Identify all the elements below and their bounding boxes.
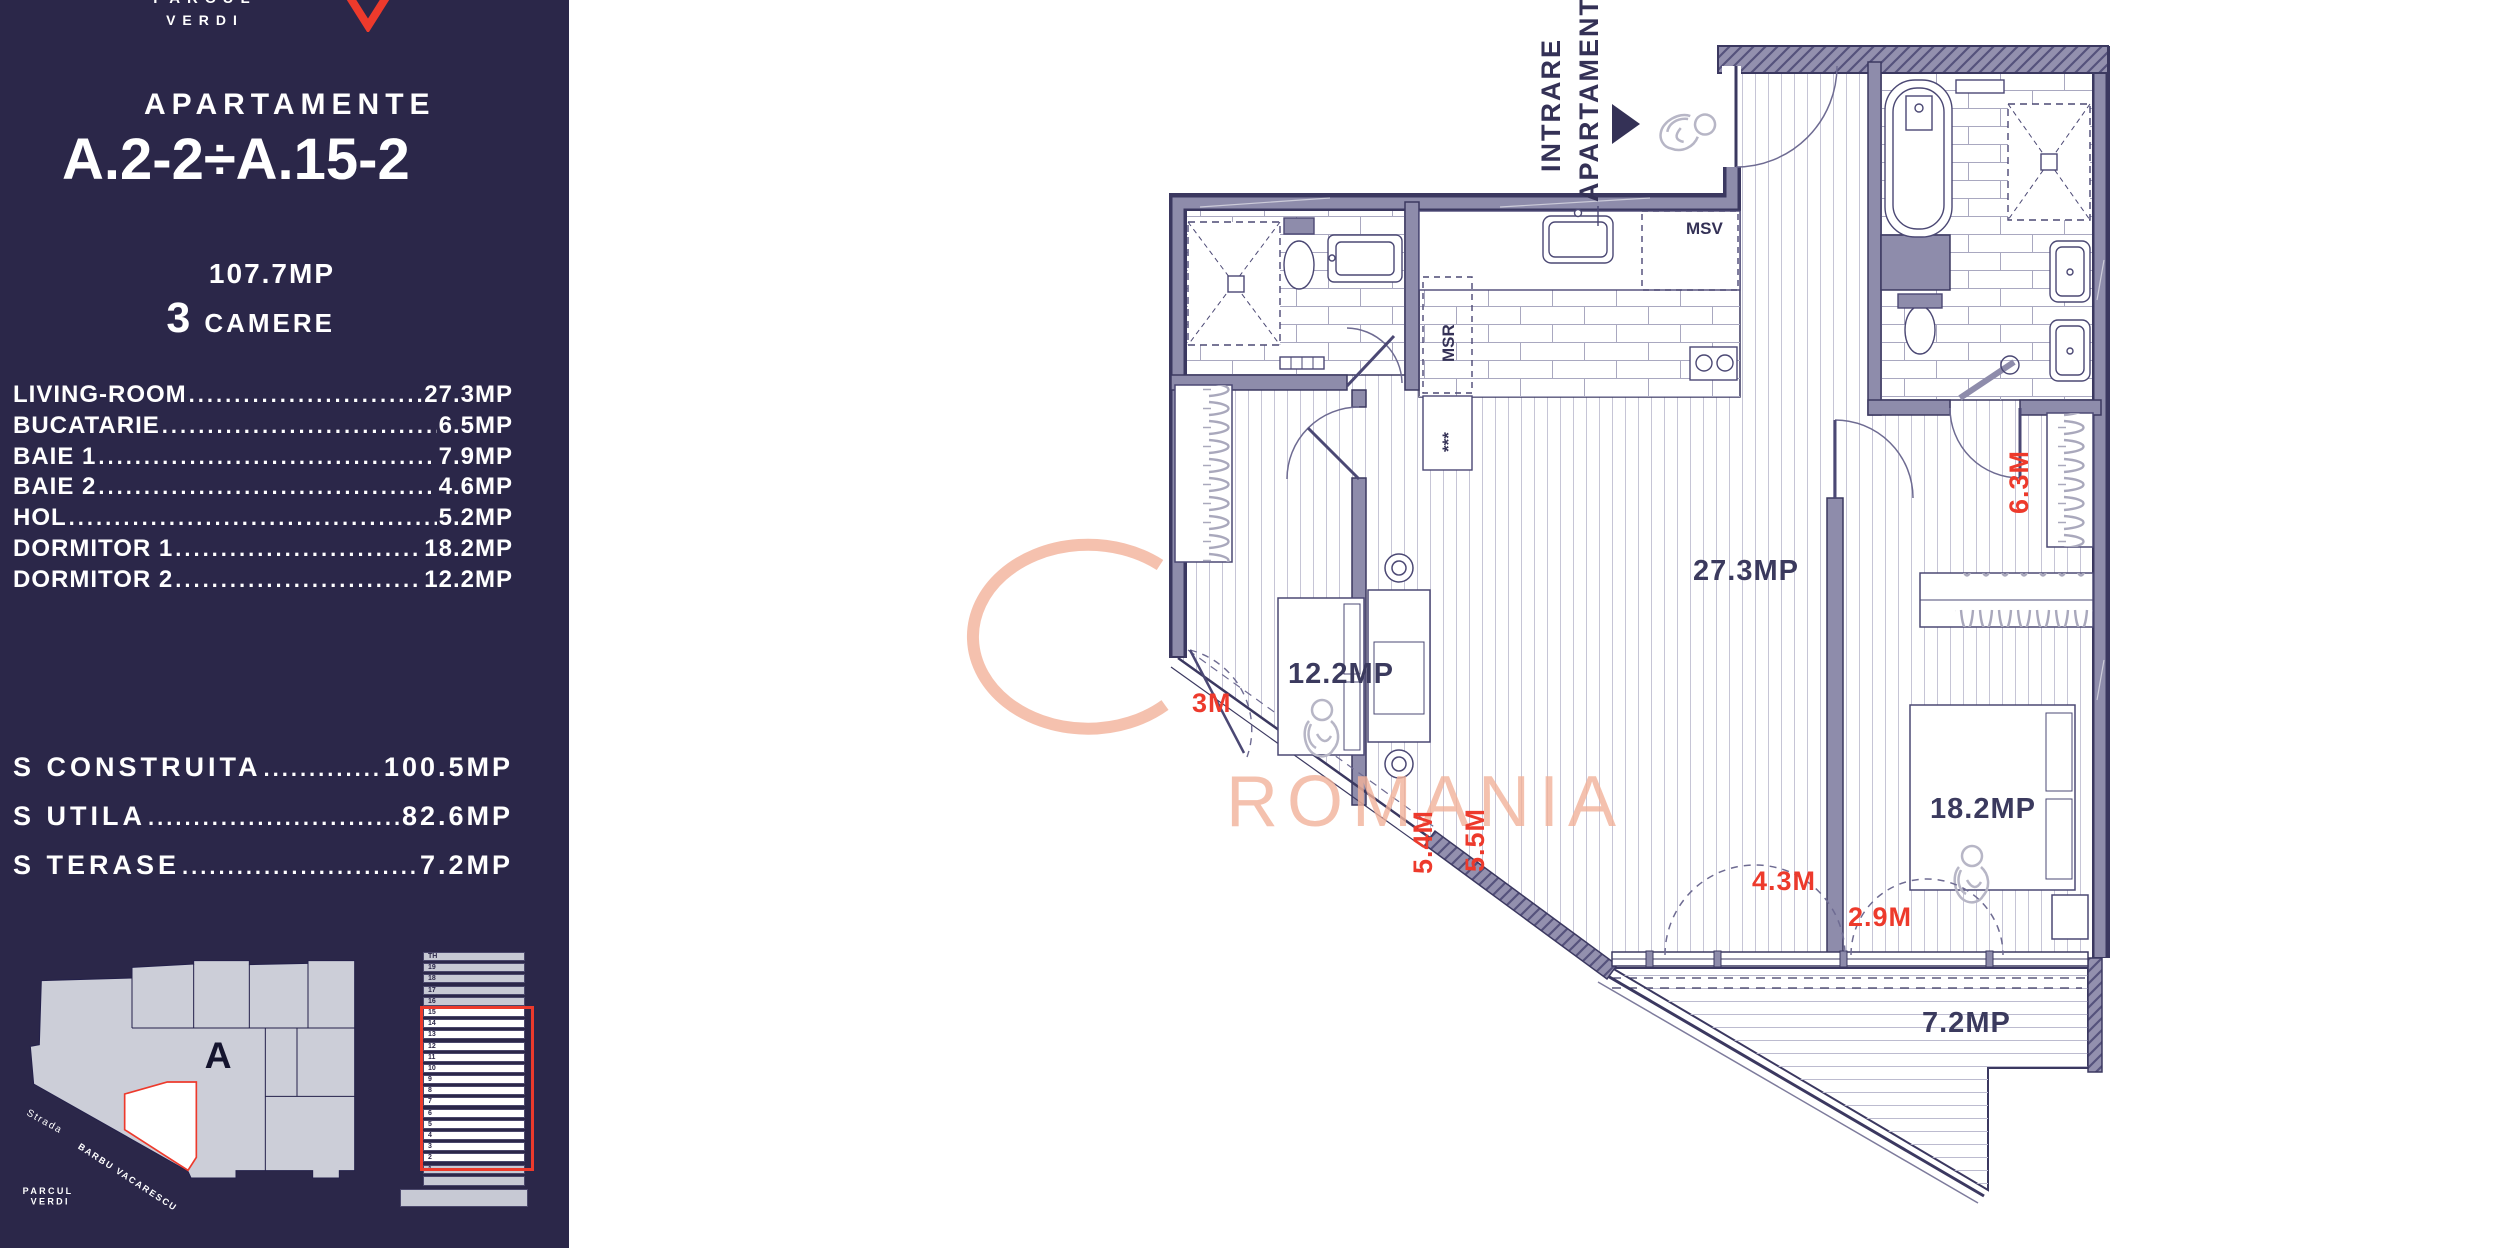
room-list-item-bucatarie: BUCATARIE...............................… [13, 412, 513, 443]
elevation-floor-17: 17 [423, 986, 525, 995]
site-plan: A Strada BARBU VACARESCU PARCUL VERDI [2, 948, 402, 1246]
room-list-item-dormitor1: DORMITOR 1..............................… [13, 535, 513, 566]
apartments-label: APARTAMENTE [144, 88, 436, 122]
toilet-cistern-2 [1284, 218, 1314, 234]
dot-leader: ........................................… [98, 474, 436, 500]
total-name: S CONSTRUITA [13, 752, 262, 783]
room-list: LIVING-ROOM.............................… [13, 381, 513, 597]
ground-floor-bar [423, 1176, 525, 1186]
total-value: 7.2MP [420, 850, 513, 881]
dim-6-3m: 6.3M [2004, 450, 2034, 514]
ground-slab [400, 1189, 528, 1207]
entrance-annotation: INTRARE APARTAMENT [1536, 0, 1640, 202]
room-name: LIVING-ROOM [13, 381, 187, 409]
totals: S CONSTRUITA............................… [13, 752, 513, 899]
room-name: BUCATARIE [13, 412, 160, 440]
room-name: BAIE 1 [13, 443, 96, 471]
dot-leader: ........................................… [189, 382, 423, 408]
terrace-area-label: 7.2MP [1922, 1007, 2011, 1039]
person-figure-entry [1656, 105, 1720, 156]
wall-living-dorm1 [1827, 498, 1843, 960]
toilet-1 [1905, 306, 1935, 354]
dot-leader: ........................................… [175, 567, 422, 593]
shelf [1956, 80, 2004, 93]
page: { "colors": {"navy":"#2b2749","red":"#ed… [0, 0, 2509, 1248]
logo-word-top: PARCUL [130, 0, 280, 9]
stars-label: *** [1439, 432, 1458, 452]
dim-5-5m: 5.5M [1460, 808, 1490, 872]
rooms-count-row: 3CAMERE [0, 294, 335, 343]
room-name: DORMITOR 1 [13, 535, 173, 563]
terrace [1598, 968, 2088, 1203]
terrace-right-parapet [2088, 958, 2102, 1072]
dim-3m: 3M [1192, 688, 1232, 718]
hatched-top-wall [1718, 46, 2108, 73]
room-name: BAIE 2 [13, 473, 96, 501]
room-list-item-hol: HOL.....................................… [13, 504, 513, 535]
dim-5-4m: 5.4M [1408, 810, 1438, 874]
wall-bath2-kitchen [1405, 202, 1419, 390]
room-value: 5.2MP [439, 504, 513, 532]
room-value: 6.5MP [439, 412, 513, 440]
total-usable: S UTILA.................................… [13, 801, 513, 850]
dot-leader: ........................................… [98, 444, 436, 470]
room-name: HOL [13, 504, 67, 532]
wall-dorm2-stub [1352, 390, 1366, 407]
dot-leader: ........................................… [264, 756, 382, 782]
entrance-arrow-icon [1612, 104, 1640, 144]
msr-label: MSR [1439, 324, 1458, 362]
room-value: 27.3MP [424, 381, 513, 409]
total-name: S TERASE [13, 850, 180, 881]
elevation-floor-TH: TH [423, 952, 525, 961]
nightstand-1 [2052, 895, 2088, 939]
building-elevation: TH19181716151413121110987654321 [400, 946, 540, 1248]
logo-word-verdi: VERDI [130, 12, 280, 28]
dormitor2-area-label: 12.2MP [1288, 658, 1394, 690]
elevation-floor-19: 19 [423, 963, 525, 972]
total-value: 82.6MP [402, 801, 513, 832]
dot-leader: ........................................… [182, 854, 418, 880]
block-label: A [205, 1034, 232, 1076]
dormitor1-area-label: 18.2MP [1930, 793, 2036, 825]
total-value: 100.5MP [384, 752, 513, 783]
room-list-item-dormitor2: DORMITOR 2..............................… [13, 566, 513, 597]
apartment-range-title: A.2-2÷A.15-2 [62, 126, 410, 193]
highlighted-unit [125, 1082, 197, 1170]
stove [1690, 347, 1737, 380]
logo-red-chevron-icon [340, 0, 410, 32]
entrance-label-line1: INTRARE [1536, 38, 1566, 172]
dot-leader: ........................................… [162, 413, 437, 439]
elevation-floor-18: 18 [423, 974, 525, 983]
room-name: DORMITOR 2 [13, 566, 173, 594]
wall-hall-bath1 [1868, 62, 1881, 415]
room-value: 12.2MP [424, 566, 513, 594]
sidebar: PARCUL VERDI APARTAMENTE A.2-2÷A.15-2 10… [0, 0, 569, 1248]
dim-4-3m: 4.3M [1752, 866, 1816, 896]
room-value: 18.2MP [424, 535, 513, 563]
rooms-count-label: CAMERE [204, 308, 335, 338]
dot-leader: ........................................… [175, 536, 422, 562]
rooms-count: 3 [166, 294, 190, 342]
room-list-item-living: LIVING-ROOM.............................… [13, 381, 513, 412]
dot-leader: ........................................… [69, 505, 437, 531]
wall-bath1-bottom-left [1868, 400, 1950, 415]
elevation-highlight-outline [420, 1006, 534, 1171]
total-area: 107.7MP [0, 258, 335, 290]
wall-bath1-chunk [1881, 235, 1950, 290]
street-prefix: Strada [25, 1108, 65, 1137]
room-list-item-baie1: BAIE 1..................................… [13, 443, 513, 474]
total-constructed: S CONSTRUITA............................… [13, 752, 513, 801]
room-value: 7.9MP [439, 443, 513, 471]
elevation-floor-16: 16 [423, 997, 525, 1006]
total-terrace: S TERASE................................… [13, 850, 513, 899]
park-label-line1: PARCUL [23, 1186, 74, 1196]
toilet-2 [1284, 241, 1314, 289]
msv-label: MSV [1686, 219, 1724, 238]
dot-leader: ........................................… [148, 805, 400, 831]
total-name: S UTILA [13, 801, 146, 832]
room-value: 4.6MP [439, 473, 513, 501]
living-area-label: 27.3MP [1693, 555, 1799, 587]
entrance-label-line2: APARTAMENT [1574, 0, 1604, 202]
watermark-swoosh-icon [973, 545, 1165, 729]
park-label-line2: VERDI [31, 1197, 70, 1207]
room-list-item-baie2: BAIE 2..................................… [13, 473, 513, 504]
dim-2-9m: 2.9M [1848, 902, 1912, 932]
